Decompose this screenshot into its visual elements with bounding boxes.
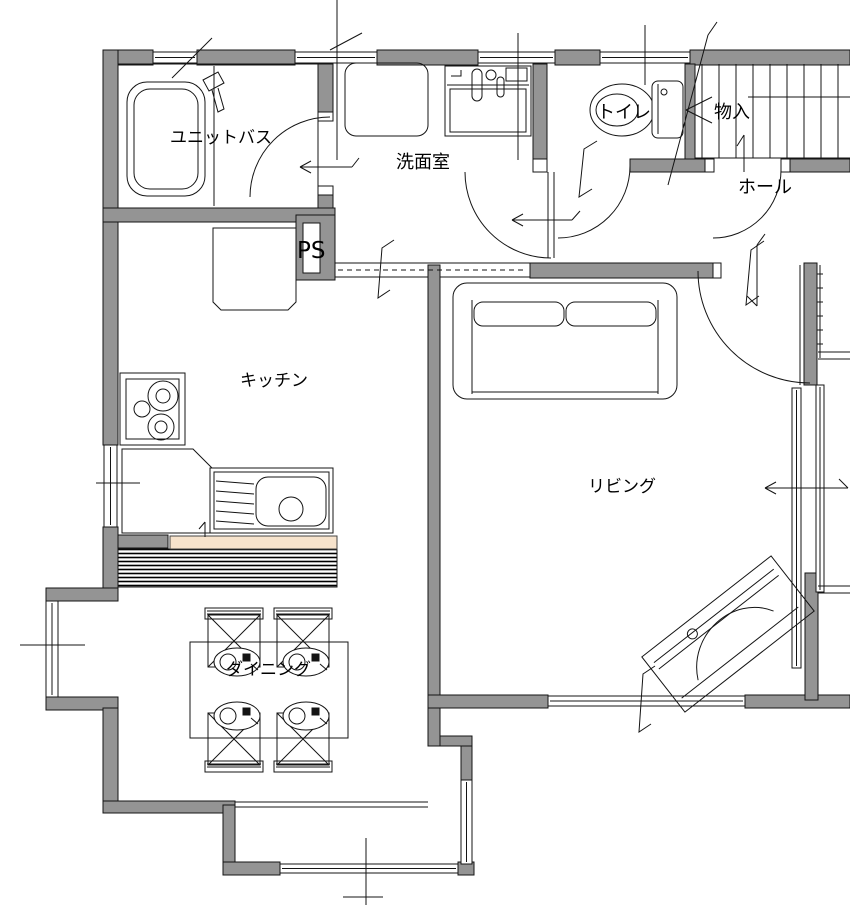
- kitchen: [118, 228, 337, 587]
- washroom-door-leaf: [548, 172, 554, 258]
- door-leaf: [804, 263, 817, 385]
- burner-small: [134, 401, 150, 417]
- wall-segment: [118, 535, 168, 548]
- wall-segment: [555, 50, 600, 65]
- wall-segment: [790, 159, 850, 172]
- sofa: [453, 283, 677, 399]
- room-labels: ユニットバス 洗面室 トイレ 物入 ホール PS キッチン リビング ダイニング: [170, 102, 792, 680]
- wall-segment: [690, 50, 850, 65]
- vent-line: [330, 33, 362, 50]
- vanity-dispenser: [497, 77, 504, 97]
- counter-hatch: [118, 549, 337, 587]
- hall-door-tick: [737, 135, 744, 172]
- label-kitchen: キッチン: [240, 371, 308, 391]
- door-jamb: [781, 159, 790, 172]
- nook-boundary-lines: [235, 802, 428, 807]
- label-living: リビング: [588, 477, 656, 497]
- wall-segment: [46, 588, 118, 601]
- walls: [46, 50, 850, 875]
- gas-stove: [120, 373, 185, 445]
- door-jamb: [705, 159, 714, 172]
- sofa-cushion: [474, 302, 564, 326]
- brace-mark: [746, 241, 764, 305]
- vanity-tray: [506, 68, 527, 81]
- wall-segment: [461, 744, 472, 782]
- wall-segment: [428, 265, 440, 746]
- label-pipe-space: PS: [297, 238, 325, 264]
- wall-segment: [197, 50, 295, 65]
- toilet-tank: [652, 81, 683, 138]
- burner-large-1: [148, 381, 178, 411]
- wall-segment: [103, 50, 118, 445]
- wall-segment: [103, 708, 118, 813]
- wall-segment: [103, 801, 235, 813]
- sliding-window-arrow: [765, 479, 848, 494]
- label-unit-bath: ユニットバス: [170, 128, 272, 148]
- door-jamb: [713, 263, 721, 278]
- floor-plan-canvas: ユニットバス 洗面室 トイレ 物入 ホール PS キッチン リビング ダイニング: [0, 0, 850, 923]
- wall-segment: [530, 263, 713, 278]
- wall-segment: [630, 159, 705, 172]
- place-setting: [214, 702, 260, 730]
- brace-mark: [378, 240, 394, 298]
- piano: [642, 556, 814, 712]
- label-storage: 物入: [714, 102, 750, 123]
- door-jamb: [533, 159, 547, 172]
- door-jamb: [318, 186, 333, 195]
- living-door-arc: [698, 271, 810, 383]
- label-hall: ホール: [738, 177, 792, 198]
- burner-large-2: [148, 414, 174, 440]
- toilet-door-arc: [558, 166, 630, 238]
- wall-segment: [318, 64, 333, 115]
- place-setting: [283, 702, 329, 730]
- label-washroom: 洗面室: [396, 152, 450, 173]
- wall-segment: [533, 64, 547, 159]
- wall-segment: [745, 695, 850, 708]
- wall-segment: [428, 695, 548, 708]
- bath-door-arrow: [300, 158, 359, 173]
- hall-swing-arrow: [747, 234, 765, 306]
- counter-tick: [199, 522, 205, 537]
- label-toilet: トイレ: [597, 102, 651, 123]
- washroom-door-arc: [465, 172, 551, 258]
- wall-segment: [223, 862, 280, 875]
- door-jamb: [318, 112, 333, 121]
- sofa-cushion: [566, 302, 656, 326]
- vanity-inner: [450, 89, 526, 132]
- sofa-arms: [472, 300, 658, 394]
- vanity-knob: [486, 70, 496, 80]
- washing-machine-pan: [345, 63, 428, 136]
- brace-mark: [579, 141, 597, 197]
- wall-segment: [103, 527, 118, 590]
- floor-plan: ユニットバス 洗面室 トイレ 物入 ホール PS キッチン リビング ダイニング: [0, 0, 850, 923]
- kitchen-sink-unit: [210, 468, 333, 533]
- label-dining: ダイニング: [226, 660, 311, 680]
- counter-top-accent: [170, 536, 337, 549]
- washroom-door-arrow: [512, 211, 580, 226]
- refrigerator: [213, 228, 296, 310]
